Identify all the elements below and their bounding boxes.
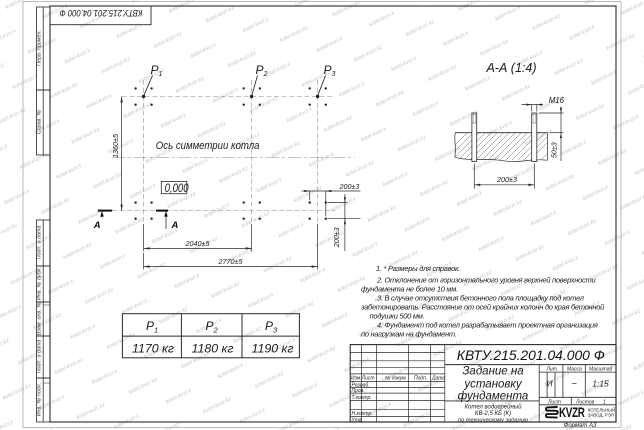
svg-text:Перв. примен.: Перв. примен. [37,30,43,66]
svg-text:2. Отклонение от горизонтально: 2. Отклонение от горизонтального уровня … [376,275,596,284]
svg-text:№ докум.: № докум. [385,376,407,382]
svg-text:50±3: 50±3 [550,142,559,158]
svg-text:подушки 500 мм.: подушки 500 мм. [370,311,425,320]
svg-text:Масштаб: Масштаб [589,366,613,372]
svg-text:КВ-2,5 КБ (К): КВ-2,5 КБ (К) [475,411,511,417]
svg-text:по нагрузкам на фундамент.: по нагрузкам на фундамент. [361,329,457,338]
svg-text:Справ. №: Справ. № [37,110,43,135]
svg-text:по техническому заданию: по техническому заданию [458,417,529,423]
svg-text:2770±5: 2770±5 [218,257,244,266]
svg-text:1180 кг: 1180 кг [192,342,234,356]
svg-text:фундамента не более 10 мм.: фундамента не более 10 мм. [361,284,458,293]
svg-text:забетонировать. Расстояние от: забетонировать. Расстояние от осей крайн… [360,302,605,311]
svg-text:КВТУ.215.201.04.000 Ф: КВТУ.215.201.04.000 Ф [457,347,605,363]
svg-text:3. В случае отсутствия бетонно: 3. В случае отсутствия бетонного пола пл… [377,293,585,302]
svg-text:Подп. и дата: Подп. и дата [37,340,43,374]
svg-text:1190 кг: 1190 кг [252,342,294,356]
svg-text:Подп. и дата: Подп. и дата [37,226,43,260]
svg-text:Масса: Масса [567,366,582,372]
svg-text:фундамента: фундамента [458,390,529,402]
svg-text:2040±5: 2040±5 [185,239,211,248]
svg-text:–: – [571,377,577,387]
svg-text:KVZR: KVZR [559,404,585,420]
svg-text:А: А [171,220,179,231]
svg-text:1: 1 [603,400,606,406]
svg-text:Н.контр.: Н.контр. [352,411,373,417]
svg-text:Дата: Дата [431,376,445,382]
svg-text:ЗАВОД, РЭП: ЗАВОД, РЭП [588,412,614,417]
svg-text:Инв. № подл.: Инв. № подл. [37,383,43,416]
svg-text:4. Фундамент под котел разраба: 4. Фундамент под котел разрабатывает про… [377,320,598,329]
svg-text:А: А [93,220,101,231]
svg-text:Ось симметрии котла: Ось симметрии котла [156,140,260,152]
svg-text:Подп.: Подп. [414,376,427,382]
svg-text:Задание на: Задание на [462,366,523,378]
svg-text:Пров.: Пров. [352,388,365,394]
svg-text:200±3: 200±3 [332,227,341,248]
svg-text:КВТУ.215.201.04.000 Ф: КВТУ.215.201.04.000 Ф [60,8,143,18]
svg-text:Т.контр.: Т.контр. [352,395,372,401]
svg-text:установку: установку [463,378,523,390]
svg-text:Взам. инв. №: Взам. инв. № [37,302,43,336]
svg-text:Формат А3: Формат А3 [564,423,597,429]
svg-text:1170 кг: 1170 кг [132,342,174,356]
svg-text:200±3: 200±3 [496,175,517,184]
svg-text:1:15: 1:15 [592,379,609,389]
svg-text:И: И [546,378,553,388]
svg-text:М16: М16 [549,96,565,105]
svg-text:Утв.: Утв. [352,417,363,423]
svg-text:Лит.: Лит. [546,366,559,372]
svg-text:200±3: 200±3 [339,182,360,191]
svg-text:А-А (1:4): А-А (1:4) [485,61,536,75]
svg-text:1360±5: 1360±5 [111,133,120,158]
svg-text:Изм.Лист: Изм.Лист [351,376,375,382]
svg-text:Инв. № дубл.: Инв. № дубл. [37,267,43,300]
svg-text:1. * Размеры для справок.: 1. * Размеры для справок. [376,264,460,273]
svg-text:Котел водогрейный: Котел водогрейный [464,403,522,410]
svg-text:0,000: 0,000 [165,181,189,195]
